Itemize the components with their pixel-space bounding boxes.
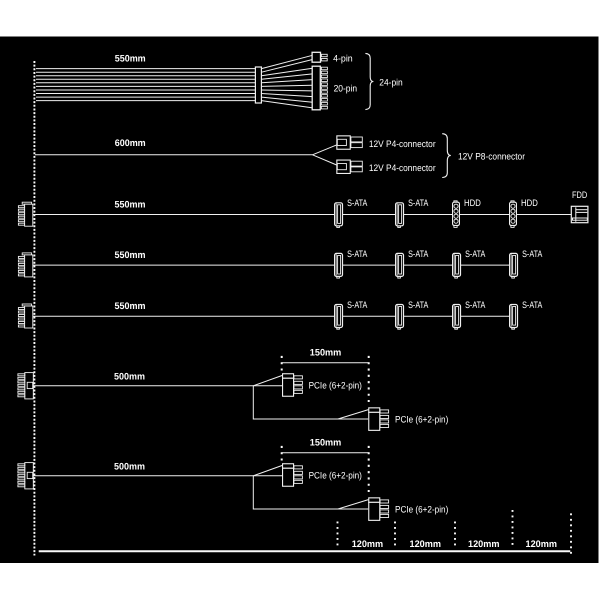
svg-text:12V P4-connector: 12V P4-connector: [369, 162, 436, 173]
svg-text:S-ATA: S-ATA: [408, 197, 429, 208]
svg-text:500mm: 500mm: [114, 461, 145, 472]
svg-text:120mm: 120mm: [352, 539, 384, 550]
svg-text:550mm: 550mm: [115, 250, 146, 261]
svg-text:12V P8-connector: 12V P8-connector: [458, 150, 525, 161]
svg-text:120mm: 120mm: [468, 539, 500, 550]
svg-text:550mm: 550mm: [115, 301, 146, 312]
svg-text:S-ATA: S-ATA: [347, 197, 368, 208]
svg-text:S-ATA: S-ATA: [347, 248, 368, 259]
svg-text:PCIe (6+2-pin): PCIe (6+2-pin): [395, 414, 448, 425]
svg-text:S-ATA: S-ATA: [522, 299, 543, 310]
svg-text:S-ATA: S-ATA: [347, 299, 368, 310]
svg-text:24-pin: 24-pin: [379, 77, 402, 88]
svg-text:150mm: 150mm: [310, 348, 342, 359]
svg-text:S-ATA: S-ATA: [408, 299, 429, 310]
svg-text:S-ATA: S-ATA: [465, 248, 486, 259]
svg-text:PCIe (6+2-pin): PCIe (6+2-pin): [395, 504, 448, 515]
svg-text:550mm: 550mm: [115, 200, 146, 211]
svg-text:600mm: 600mm: [115, 138, 146, 149]
svg-text:4-pin: 4-pin: [333, 53, 353, 64]
svg-text:12V P4-connector: 12V P4-connector: [369, 138, 436, 149]
svg-text:HDD: HDD: [464, 197, 481, 208]
svg-text:PCIe (6+2-pin): PCIe (6+2-pin): [309, 380, 362, 391]
svg-text:PCIe (6+2-pin): PCIe (6+2-pin): [309, 470, 362, 481]
svg-text:150mm: 150mm: [310, 438, 342, 449]
svg-text:500mm: 500mm: [114, 371, 145, 382]
svg-text:120mm: 120mm: [526, 539, 558, 550]
svg-text:FDD: FDD: [572, 189, 587, 200]
svg-text:550mm: 550mm: [115, 53, 146, 64]
svg-text:S-ATA: S-ATA: [408, 248, 429, 259]
svg-text:20-pin: 20-pin: [334, 82, 358, 93]
svg-text:S-ATA: S-ATA: [522, 248, 543, 259]
svg-text:120mm: 120mm: [410, 539, 442, 550]
svg-text:S-ATA: S-ATA: [465, 299, 486, 310]
svg-text:HDD: HDD: [521, 197, 538, 208]
